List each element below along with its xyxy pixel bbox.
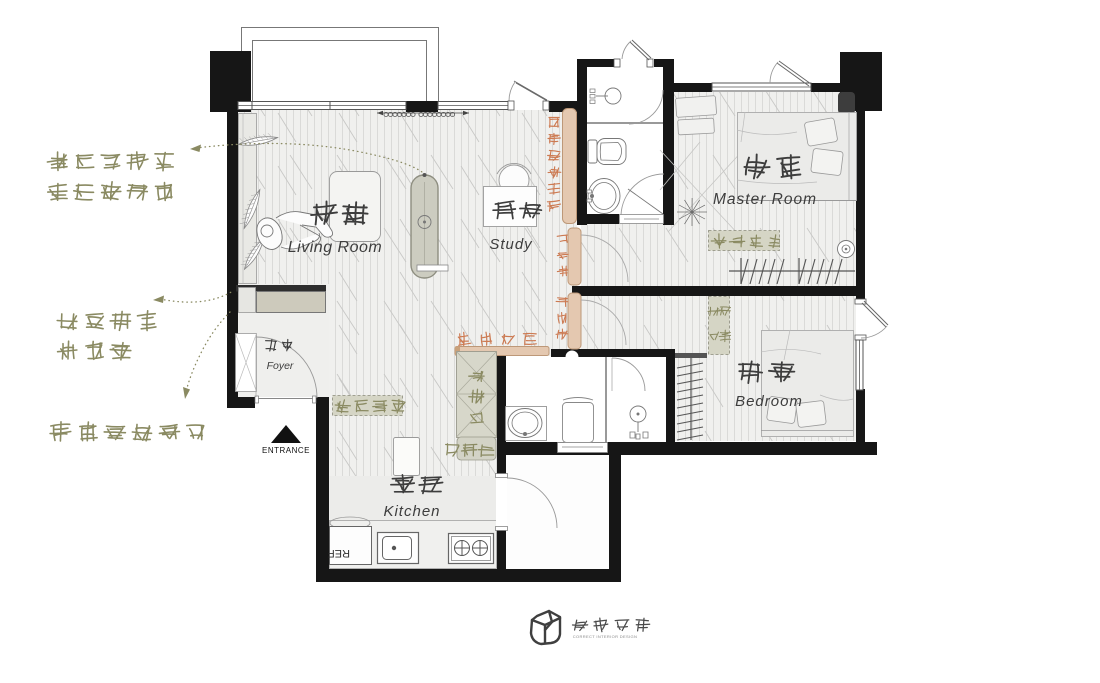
svg-text:Study: Study <box>489 236 533 253</box>
svg-text:Foyer: Foyer <box>267 360 294 372</box>
svg-text:CORRECT INTERIOR DESIGN: CORRECT INTERIOR DESIGN <box>573 634 637 639</box>
svg-text:REF: REF <box>328 547 350 559</box>
svg-text:Bedroom: Bedroom <box>735 393 803 410</box>
svg-text:Master Room: Master Room <box>713 191 817 208</box>
svg-text:ENTRANCE: ENTRANCE <box>262 446 310 455</box>
svg-text:Living Room: Living Room <box>288 239 382 256</box>
svg-text:Kitchen: Kitchen <box>383 503 440 520</box>
